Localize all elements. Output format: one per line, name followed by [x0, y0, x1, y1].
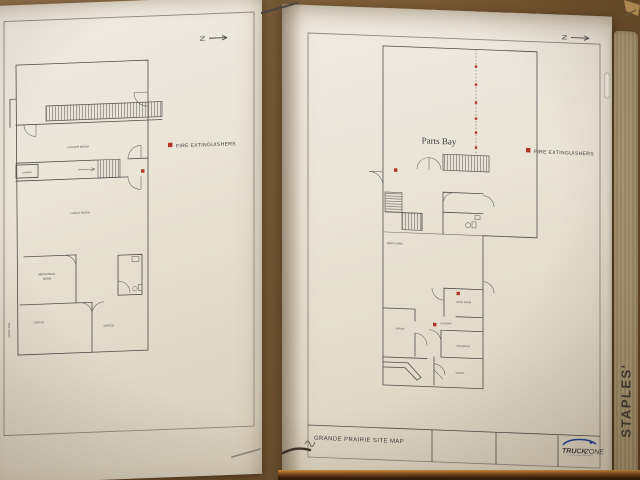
north-arrow-icon: N [560, 35, 589, 41]
stairs-hatched-band [46, 102, 162, 121]
room-label-landing: LANDING [22, 171, 32, 174]
desk-object [624, 0, 640, 16]
room-label-mechanical-room-2: ROOM [43, 276, 51, 280]
fire-extinguisher-marker [433, 323, 436, 327]
stair-flight-2 [402, 213, 422, 231]
room-label-hallway: HALLWAY [441, 322, 452, 325]
site-map-title: GRANDE PRAIRIE SITE MAP [314, 436, 404, 445]
right-floorplan-sheet: N [282, 4, 640, 480]
right-building-walls [369, 45, 537, 390]
room-label-mechanical-room: MECHANICAL [38, 272, 56, 277]
truckzone-logo: TRUCK ZONE [562, 439, 604, 457]
left-building-walls [10, 60, 162, 356]
room-label-back-room: BACK ROOM [457, 301, 472, 305]
staples-brand-label: STAPLES' [619, 363, 634, 438]
north-arrow-icon: N [198, 35, 227, 41]
room-label-office-lower: OFFICE [456, 372, 465, 375]
left-floorplan-sheet: N [0, 0, 262, 480]
parts-bay-title: Parts Bay [422, 135, 457, 146]
north-label: N [560, 35, 567, 40]
room-label-office: OFFICE [396, 327, 405, 330]
staples-brand: STAPLES' [613, 335, 639, 466]
room-label-office-right: OFFICE [104, 323, 115, 327]
photo-of-two-site-map-sheets: N [0, 0, 640, 480]
fire-extinguisher-legend-marker [526, 148, 530, 153]
desk-edge [278, 470, 640, 480]
room-label-lunch-room: LUNCH ROOM [70, 210, 90, 215]
right-floorplan-drawing: N [284, 6, 614, 480]
fire-extinguisher-marker [141, 169, 144, 173]
right-legend-label: FIRE EXTINGUISHERS [534, 149, 594, 157]
fire-extinguisher-legend-marker [168, 143, 172, 148]
right-legend: FIRE EXTINGUISHERS [526, 148, 594, 158]
sleeve-punch-hole [604, 72, 610, 98]
title-block: GRANDE PRAIRIE SITE MAP TRUCK ZONE [308, 425, 604, 468]
left-legend: FIRE EXTINGUISHERS [168, 140, 236, 150]
corridor-stairs [98, 159, 120, 178]
left-border-frame [4, 12, 254, 436]
side-note-vertical: NORTH SIDE [8, 322, 11, 337]
stair-flight-1 [385, 192, 402, 213]
room-label-locker-room: LOCKER ROOM [67, 144, 89, 149]
parts-bay-stairs [443, 154, 489, 172]
fire-extinguisher-marker [457, 292, 460, 296]
right-border-frame [308, 33, 600, 468]
left-floorplan-drawing: N [0, 0, 262, 480]
room-label-washroom: WASHROOM [456, 345, 469, 349]
room-label-parts-area: PARTS AREA [387, 241, 403, 246]
room-label-office-left: OFFICE [34, 320, 45, 324]
north-label: N [198, 36, 205, 41]
left-legend-label: FIRE EXTINGUISHERS [176, 141, 236, 149]
fire-extinguisher-marker [394, 168, 397, 172]
